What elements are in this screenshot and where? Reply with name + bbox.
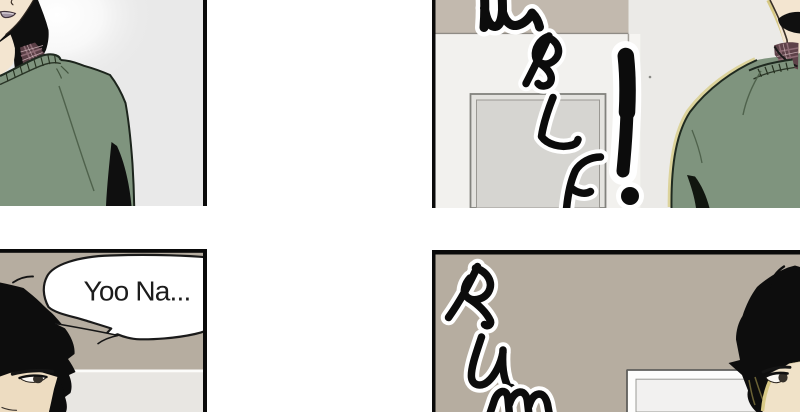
svg-text:Yoo Na...: Yoo Na... bbox=[84, 276, 191, 307]
